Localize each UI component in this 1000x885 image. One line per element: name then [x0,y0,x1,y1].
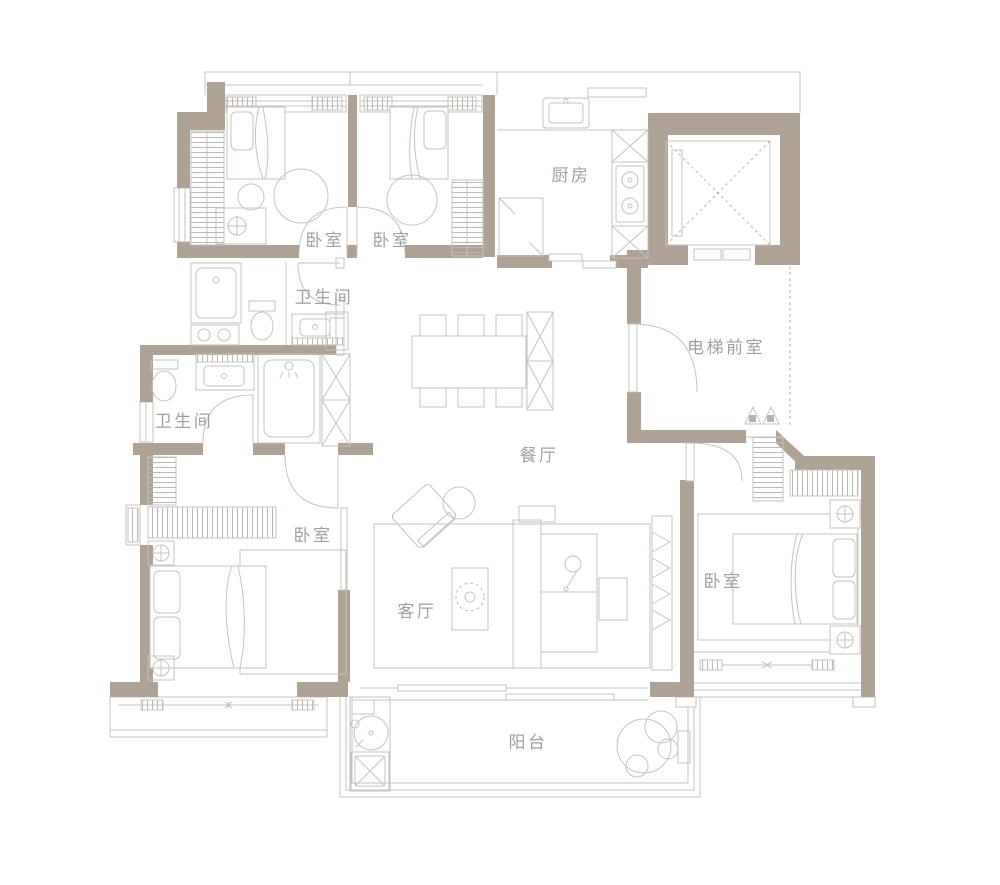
entry-door-icon [745,407,779,437]
side-table-icon [443,487,475,519]
storage-cabinet-icon [322,354,350,446]
sideboard-icon [527,312,553,410]
exterior-outline [205,72,800,113]
fridge-icon [499,198,543,256]
bedroom-left-furniture [148,457,346,680]
armchair-icon [391,483,458,550]
room-label-bathroom-upper: 卫生间 [295,288,354,307]
elevator-icon [666,141,770,245]
room-label-kitchen: 厨房 [552,166,591,185]
plant-icon [617,711,690,777]
room-label-bedroom-top-middle: 卧室 [373,231,412,250]
chair-icon [274,169,328,223]
sofa-icon [513,506,627,668]
tv-cabinet-icon [652,516,672,670]
room-label-balcony: 阳台 [509,733,548,752]
washing-machine-icon [351,752,389,790]
dresser-icon [148,507,276,538]
coffee-table-icon [452,568,488,630]
room-label-bedroom-top-left: 卧室 [306,231,345,250]
stool-icon [238,184,264,210]
wardrobe-icon [191,131,224,245]
dresser-icon [790,470,858,496]
rug [374,524,650,668]
room-label-elevator-lobby: 电梯前室 [687,338,765,357]
bed-icon [227,107,285,179]
bed-icon [150,566,266,668]
room-label-living-room: 客厅 [398,602,437,621]
floor-lamp-icon [564,556,581,591]
bedroom-right-furniture [698,437,860,654]
laundry-sink-icon [351,700,388,750]
shower-icon [258,354,320,443]
dining-table-icon [412,336,526,388]
vanity-icon [196,354,254,390]
dining-furniture [412,312,553,410]
room-label-bathroom-lower: 卫生间 [155,412,214,431]
chair-icon [387,175,437,225]
wardrobe-icon [148,457,176,505]
nightstand-icon [830,500,860,528]
vanity-icon [191,325,239,345]
shower-icon [191,263,241,323]
toilet-icon [249,301,275,340]
floor-plan: 卧室 卧室 厨房 卫生间 电梯前室 卫生间 餐厅 卧室 客厅 卧室 阳台 [0,0,1000,885]
wardrobe-icon [753,437,783,501]
floor-plan-canvas: 卧室 卧室 厨房 卫生间 电梯前室 卫生间 餐厅 卧室 客厅 卧室 阳台 [0,0,1000,885]
wardrobe-icon [452,180,483,256]
stove-icon [616,166,644,222]
living-furniture [374,483,672,670]
room-label-dining-room: 餐厅 [520,446,559,465]
kitchen-sink-icon [543,98,589,128]
room-label-bedroom-left: 卧室 [294,526,333,545]
room-label-bedroom-right: 卧室 [704,572,743,591]
bed-icon [733,534,857,624]
nightstand-icon [830,626,860,654]
toilet-icon [151,360,178,401]
bed-icon [390,107,448,179]
